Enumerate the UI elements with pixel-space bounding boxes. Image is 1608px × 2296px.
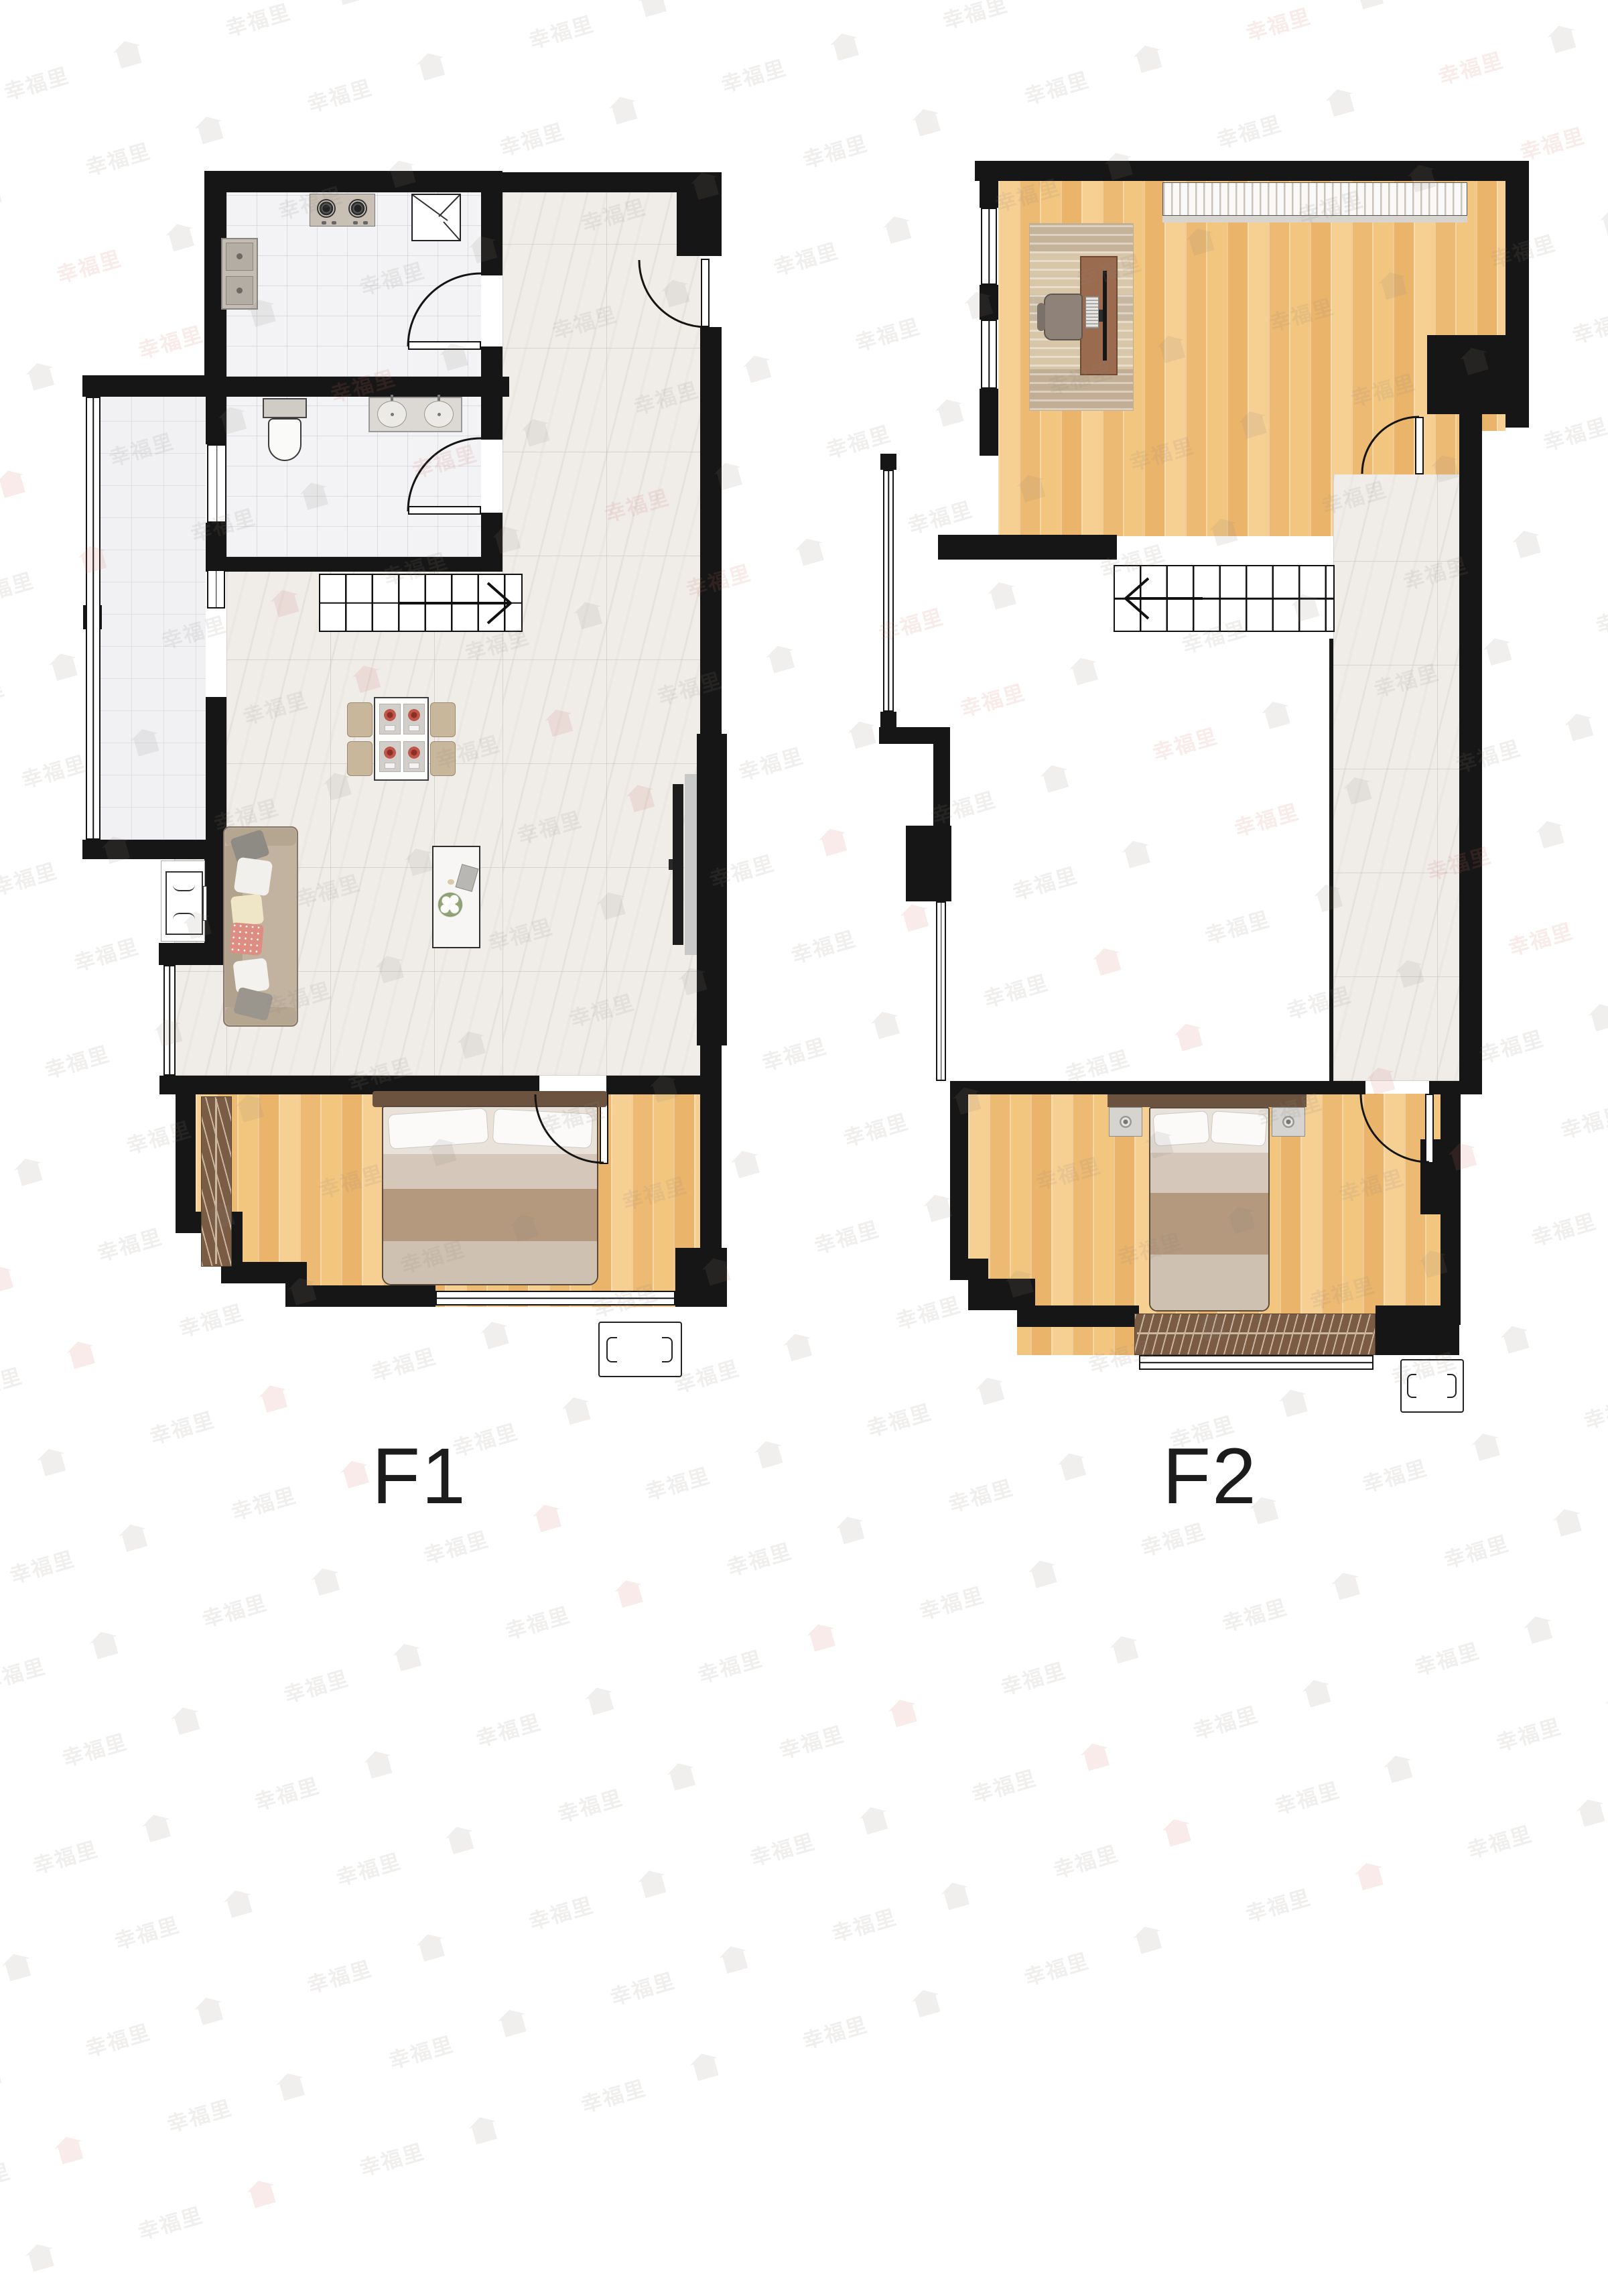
watermark-text: 幸福里 [1242,1880,1314,1928]
watermark-house-icon [939,1879,973,1911]
watermark-house-icon [391,1640,425,1672]
watermark-house-icon [274,2069,308,2102]
watermark-text: 幸福里 [29,1832,102,1880]
watermark-text: 幸福里 [1049,1836,1122,1884]
watermark-house-icon [857,1803,891,1836]
watermark-house-icon [665,1759,699,1791]
watermark-house-icon [1160,1815,1195,1848]
watermark-house-icon [1522,1612,1556,1645]
watermark-house-icon [192,1994,226,2026]
corner-cabinet-lines [413,195,460,240]
watermark-house-icon [245,2177,279,2209]
watermark-house-icon [362,1747,396,1779]
watermark-text: 幸福里 [0,1649,49,1697]
watermark-text: 幸福里 [0,2155,14,2202]
watermark-text: 幸福里 [251,1769,323,1816]
watermark-house-icon [805,1620,839,1653]
watermark-house-icon [140,1811,174,1843]
watermark-house-icon [717,1942,751,1974]
watermark-text: 幸福里 [385,2027,457,2075]
watermark-house-icon [583,1684,617,1716]
watermark-text: 幸福里 [828,1900,900,1948]
watermark-text: 幸福里 [356,2134,428,2182]
watermark-text: 幸福里 [799,2007,871,2055]
f2-study-door-arc [1362,417,1419,474]
watermark-text: 幸福里 [1271,1773,1343,1821]
watermark-house-icon [23,2240,58,2273]
watermark-house-icon [1131,1923,1165,1955]
watermark-text: 幸福里 [111,1908,183,1956]
watermark-house-icon [636,1867,670,1899]
watermark-text: 幸福里 [1493,1710,1565,1757]
watermark-house-icon [0,1950,34,1982]
watermark-house-icon [1300,1676,1335,1708]
watermark-house-icon [1603,1688,1608,1720]
watermark-house-icon [496,2006,530,2038]
watermark-house-icon [1382,1752,1416,1784]
watermark-text: 幸福里 [332,1844,405,1892]
watermark-house-icon [443,1823,477,1855]
kitchen-door-arc [408,273,481,346]
watermark-house-icon [52,2133,86,2165]
f2-bedroom-door-arc [1361,1094,1429,1162]
watermark-text: 幸福里 [997,1653,1069,1701]
watermark-text: 幸福里 [606,1964,679,2011]
watermark-text: 幸福里 [1020,1944,1093,1992]
watermark-text: 幸福里 [775,1717,848,1765]
watermark-text: 幸福里 [746,1824,819,1872]
watermark-house-icon [0,2057,5,2090]
watermark-text: 幸福里 [134,2198,206,2246]
watermark-text: 幸福里 [280,1661,352,1709]
watermark-house-icon [169,1704,203,1736]
watermark-text: 幸福里 [525,1888,597,1935]
entry-door-arc [639,260,706,327]
f1-stairs-arrow [399,583,511,623]
watermark-text: 幸福里 [303,1952,375,1999]
watermark-text: 幸福里 [163,2091,236,2139]
f2-stairs-arrow [1126,578,1203,619]
watermark-house-icon [886,1696,921,1728]
watermark-house-icon [909,1986,943,2019]
bathroom-door-arc [408,438,481,511]
watermark-text: 幸福里 [1411,1634,1483,1681]
watermark-house-icon [466,2113,500,2145]
watermark-house-icon [414,1930,448,1962]
watermark-house-icon [88,1628,122,1660]
watermark-house-icon [222,1887,256,1919]
watermark-text: 幸福里 [968,1761,1041,1809]
watermark-text: 幸福里 [1189,1698,1262,1745]
watermark-house-icon [688,2050,722,2082]
watermark-text: 幸福里 [554,1781,626,1828]
watermark-house-icon [1079,1740,1113,1772]
watermark-house-icon [1353,1859,1387,1891]
watermark-text: 幸福里 [472,1705,545,1752]
watermark-text: 幸福里 [694,1641,766,1689]
f1-bedroom-door-arc [535,1094,604,1163]
watermark-text: 幸福里 [1463,1817,1536,1864]
watermark-text: 幸福里 [58,1725,131,1773]
watermark-house-icon [1574,1795,1608,1828]
plan-linework [0,0,1608,1608]
watermark-text: 幸福里 [82,2015,154,2063]
watermark-text: 幸福里 [577,2071,649,2118]
watermark-house-icon [1108,1633,1142,1665]
